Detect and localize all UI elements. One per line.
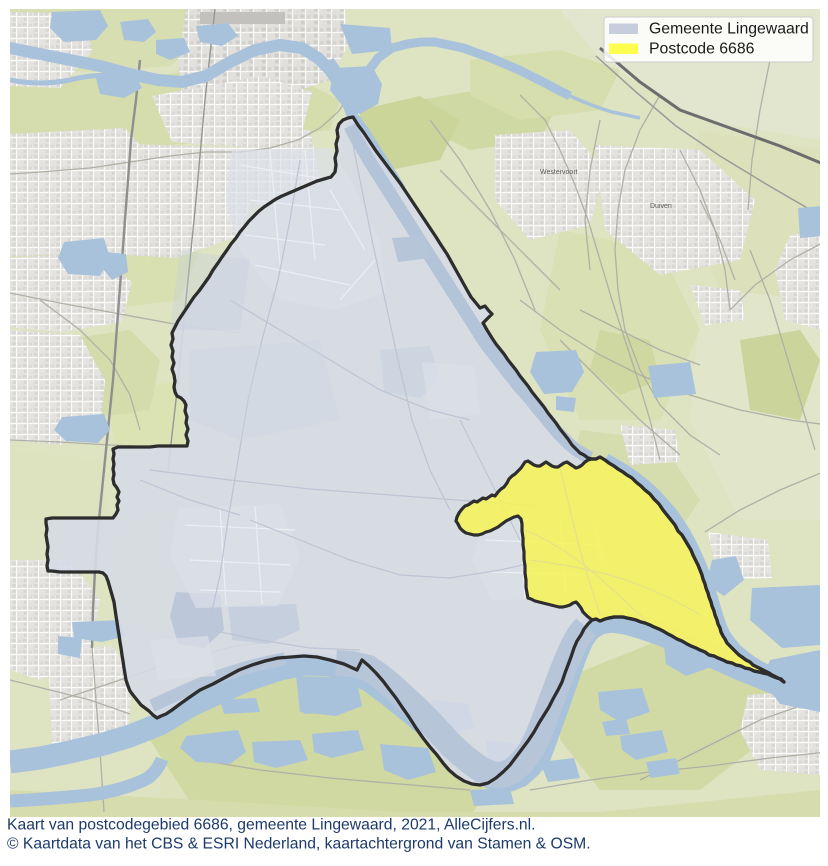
- svg-text:© Kaartdata van het CBS & ESRI: © Kaartdata van het CBS & ESRI Nederland…: [7, 836, 591, 853]
- svg-text:Gemeente Lingewaard: Gemeente Lingewaard: [649, 21, 809, 38]
- svg-text:Kaart van postcodegebied 6686,: Kaart van postcodegebied 6686, gemeente …: [7, 817, 536, 834]
- svg-text:Westervoort: Westervoort: [540, 169, 578, 176]
- svg-text:Postcode 6686: Postcode 6686: [649, 41, 755, 58]
- svg-text:Duiven: Duiven: [650, 203, 672, 210]
